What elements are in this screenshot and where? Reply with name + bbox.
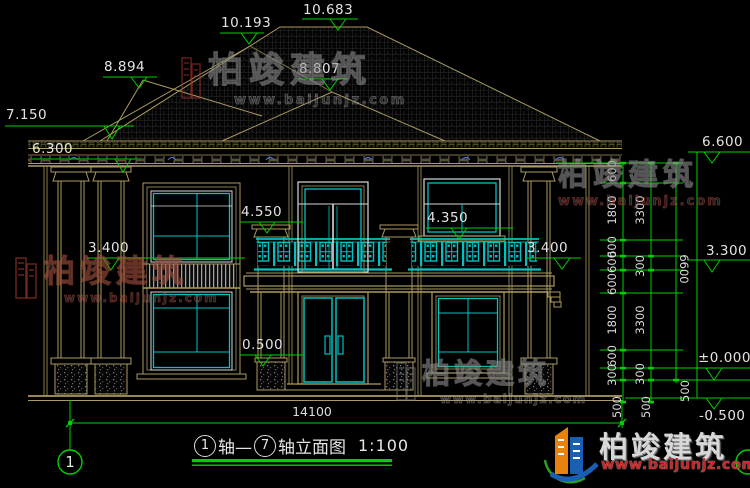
dim-inner-0: 600 — [606, 149, 618, 193]
title-axis-text-b: 轴立面图 — [278, 433, 346, 458]
elevation-label-rail-top: 4.350 — [427, 211, 468, 225]
title-axis-start: 1 — [194, 435, 216, 457]
dim-below-0: 500 — [611, 385, 623, 429]
roof — [83, 27, 600, 141]
elevation-label-pedestal: 0.500 — [242, 338, 283, 352]
elevation-label-ground-floor: ±0.000 — [698, 351, 750, 365]
brand-logo-url: www.baijunjz.com — [601, 457, 750, 473]
left-window — [137, 183, 246, 379]
cad-elevation-canvas: 10.683 10.193 8.894 8.807 7.150 6.300 3.… — [0, 0, 750, 488]
elevation-label-hip-front: 8.807 — [299, 62, 340, 76]
axis-bubble-1: 1 — [61, 453, 79, 471]
title-axis-text-a: 轴— — [218, 433, 252, 458]
elevation-label-band-left: 3.400 — [88, 241, 129, 255]
dim-mid-1: 300 — [634, 244, 646, 288]
right-window-lower — [427, 292, 509, 378]
title-axis-end: 7 — [254, 435, 276, 457]
elevation-label-band-right: 3.400 — [527, 241, 568, 255]
balcony-railing — [254, 239, 541, 270]
elevation-label-hip-left: 8.894 — [104, 60, 145, 74]
elevation-label-soffit: 6.300 — [32, 142, 73, 156]
dim-below-2: 500 — [679, 369, 691, 413]
elevation-label-ridge-main: 10.683 — [303, 3, 353, 17]
dimension-ticks — [68, 162, 679, 425]
elevation-label-eave-tip: 7.150 — [6, 108, 47, 122]
drawing-title: 1轴—7轴立面图1:100 — [192, 433, 409, 458]
dim-mid-0: 3300 — [634, 188, 646, 232]
title-scale: 1:100 — [358, 436, 409, 455]
dim-outer-total: 6600 — [678, 247, 690, 291]
brand-logo-icon — [543, 422, 599, 484]
dim-overall-width: 14100 — [272, 404, 352, 419]
balcony-slab — [244, 273, 561, 307]
elevation-label-second-floor: 3.300 — [706, 244, 747, 258]
dim-below-1: 500 — [640, 385, 652, 429]
elevation-label-pillar-cap: 4.550 — [241, 205, 282, 219]
elevation-label-ridge-rear: 10.193 — [221, 16, 271, 30]
dim-mid-2: 3300 — [634, 298, 646, 342]
elevation-label-site-level: -0.500 — [699, 409, 746, 423]
elevation-label-right-eave: 6.600 — [702, 135, 743, 149]
entrance-door — [281, 292, 387, 390]
